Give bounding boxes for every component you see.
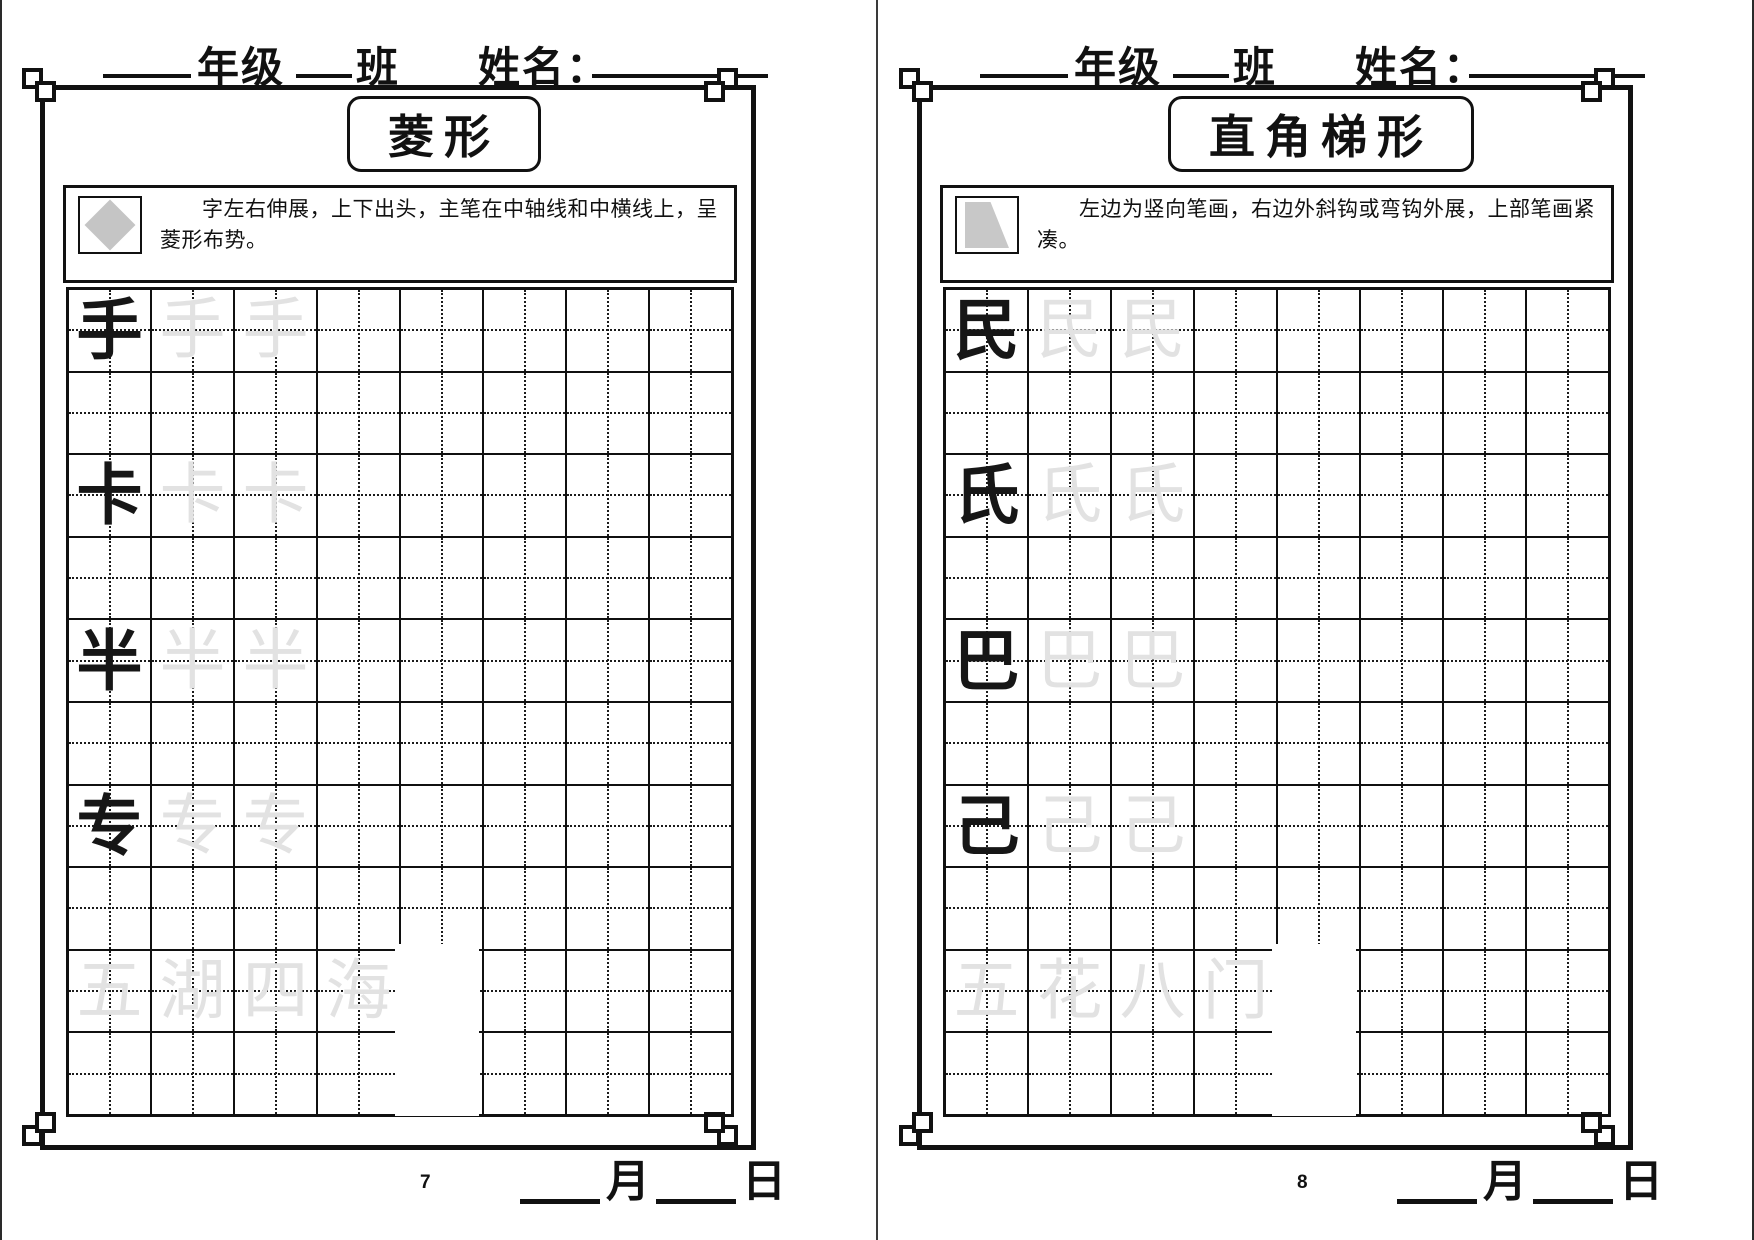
practice-cell[interactable] [1443, 1032, 1526, 1115]
practice-cell[interactable] [68, 702, 151, 785]
practice-cell[interactable] [1277, 785, 1360, 868]
shape-icon-box [78, 196, 142, 254]
practice-cell[interactable] [1111, 372, 1194, 455]
model-character: 半 [77, 628, 143, 694]
practice-cell[interactable] [483, 619, 566, 702]
practice-cell[interactable] [1111, 537, 1194, 620]
trace-character: 半 [243, 628, 309, 694]
practice-cell[interactable] [151, 702, 234, 785]
practice-cell[interactable] [483, 289, 566, 372]
practice-cell[interactable] [68, 537, 151, 620]
practice-cell[interactable] [945, 867, 1028, 950]
practice-cell[interactable] [649, 537, 732, 620]
trace-character: 专 [160, 793, 226, 859]
grid-cutout [1272, 944, 1356, 1116]
corner-knot-icon [899, 68, 935, 104]
trace-character: 八 [1120, 958, 1186, 1024]
practice-cell[interactable] [400, 537, 483, 620]
lesson-title-box: 直角梯形 [1168, 96, 1474, 172]
practice-cell[interactable] [649, 454, 732, 537]
practice-cell[interactable] [649, 702, 732, 785]
lesson-title-box: 菱形 [347, 96, 541, 172]
practice-cell[interactable]: 花 [1028, 950, 1111, 1033]
practice-cell[interactable] [400, 702, 483, 785]
practice-cell[interactable] [566, 372, 649, 455]
practice-cell[interactable] [1360, 785, 1443, 868]
lesson-title: 直角梯形 [1209, 101, 1433, 167]
day-blank-line[interactable] [1533, 1153, 1613, 1204]
grid-cutout [395, 944, 479, 1116]
practice-cell[interactable] [1360, 454, 1443, 537]
practice-cell[interactable] [566, 785, 649, 868]
practice-cell[interactable]: 己 [1111, 785, 1194, 868]
practice-cell[interactable] [1526, 785, 1609, 868]
trace-character: 氏 [1037, 462, 1103, 528]
practice-cell[interactable] [400, 619, 483, 702]
trace-character: 花 [1037, 958, 1103, 1024]
class-blank-line[interactable] [1173, 34, 1229, 78]
class-blank-line[interactable] [296, 34, 352, 78]
practice-cell[interactable] [566, 702, 649, 785]
practice-cell[interactable] [1028, 1032, 1111, 1115]
trace-character: 湖 [160, 958, 226, 1024]
practice-cell[interactable] [68, 372, 151, 455]
corner-knot-icon [22, 1110, 58, 1146]
practice-cell[interactable] [1443, 785, 1526, 868]
practice-cell[interactable] [1194, 619, 1277, 702]
trace-character: 氏 [1120, 462, 1186, 528]
model-character: 专 [77, 793, 143, 859]
practice-cell[interactable] [649, 950, 732, 1033]
practice-cell[interactable] [317, 785, 400, 868]
practice-cell[interactable] [1111, 867, 1194, 950]
practice-cell[interactable]: 半 [151, 619, 234, 702]
practice-cell[interactable] [1194, 785, 1277, 868]
practice-cell[interactable] [1526, 619, 1609, 702]
grade-blank-line[interactable] [980, 34, 1068, 78]
practice-cell[interactable] [1360, 372, 1443, 455]
practice-cell[interactable] [234, 372, 317, 455]
model-character: 巴 [954, 628, 1020, 694]
practice-cell[interactable] [151, 867, 234, 950]
practice-cell[interactable]: 巴 [1111, 619, 1194, 702]
practice-cell[interactable] [1277, 289, 1360, 372]
trace-character: 专 [243, 793, 309, 859]
trace-character: 巴 [1120, 628, 1186, 694]
practice-cell[interactable] [483, 702, 566, 785]
diamond-icon [85, 200, 136, 251]
instruction-box: 字左右伸展，上下出头，主笔在中轴线和中横线上，呈菱形布势。 [63, 185, 737, 283]
practice-cell[interactable] [483, 785, 566, 868]
practice-cell[interactable] [234, 867, 317, 950]
trace-character: 卡 [243, 462, 309, 528]
practice-cell[interactable] [1111, 702, 1194, 785]
practice-cell[interactable]: 民 [1111, 289, 1194, 372]
practice-cell[interactable] [566, 867, 649, 950]
practice-cell[interactable] [1277, 619, 1360, 702]
practice-cell[interactable]: 氏 [1028, 454, 1111, 537]
practice-cell[interactable] [1443, 537, 1526, 620]
date-footer: 月 日 [520, 1148, 792, 1204]
practice-cell[interactable] [1194, 454, 1277, 537]
practice-cell[interactable]: 卡 [234, 454, 317, 537]
practice-cell[interactable]: 海 [317, 950, 400, 1033]
practice-cell[interactable] [483, 867, 566, 950]
practice-cell[interactable] [945, 372, 1028, 455]
practice-cell[interactable] [945, 537, 1028, 620]
practice-cell[interactable] [1360, 537, 1443, 620]
practice-cell[interactable] [1277, 454, 1360, 537]
page-number: 8 [1297, 1172, 1308, 1194]
practice-cell[interactable] [649, 867, 732, 950]
practice-cell[interactable] [1443, 454, 1526, 537]
practice-cell[interactable]: 半 [68, 619, 151, 702]
practice-cell[interactable] [1360, 619, 1443, 702]
day-blank-line[interactable] [656, 1153, 736, 1204]
practice-cell[interactable] [1111, 1032, 1194, 1115]
practice-cell[interactable] [317, 867, 400, 950]
practice-cell[interactable]: 手 [234, 289, 317, 372]
practice-cell[interactable] [1194, 537, 1277, 620]
practice-cell[interactable]: 湖 [151, 950, 234, 1033]
practice-cell[interactable] [151, 372, 234, 455]
practice-cell[interactable] [234, 1032, 317, 1115]
practice-cell[interactable]: 卡 [151, 454, 234, 537]
trace-character: 巴 [1037, 628, 1103, 694]
practice-cell[interactable] [945, 702, 1028, 785]
practice-cell[interactable] [1028, 702, 1111, 785]
day-label: 日 [742, 1160, 786, 1204]
practice-cell[interactable] [483, 950, 566, 1033]
practice-cell[interactable] [1526, 372, 1609, 455]
practice-cell[interactable] [317, 537, 400, 620]
page-number: 7 [420, 1172, 431, 1194]
trace-character: 五 [77, 958, 143, 1024]
practice-cell[interactable]: 民 [1028, 289, 1111, 372]
practice-cell[interactable] [1443, 702, 1526, 785]
practice-cell[interactable] [1360, 867, 1443, 950]
trace-character: 门 [1203, 958, 1269, 1024]
practice-cell[interactable] [649, 619, 732, 702]
model-character: 民 [954, 297, 1020, 363]
practice-cell[interactable] [1277, 537, 1360, 620]
practice-cell[interactable] [317, 454, 400, 537]
trace-character: 手 [243, 297, 309, 363]
practice-cell[interactable] [1194, 1032, 1277, 1115]
practice-cell[interactable]: 氏 [945, 454, 1028, 537]
corner-knot-icon [1579, 68, 1615, 104]
trace-character: 四 [243, 958, 309, 1024]
practice-cell[interactable] [317, 1032, 400, 1115]
trapezoid-icon [965, 202, 1009, 248]
practice-cell[interactable] [1526, 867, 1609, 950]
date-footer: 月 日 [1397, 1148, 1669, 1204]
corner-knot-icon [702, 68, 738, 104]
model-character: 氏 [954, 462, 1020, 528]
practice-cell[interactable] [566, 289, 649, 372]
day-label: 日 [1619, 1160, 1663, 1204]
practice-cell[interactable]: 四 [234, 950, 317, 1033]
practice-cell[interactable] [1194, 867, 1277, 950]
practice-cell[interactable] [234, 702, 317, 785]
trace-character: 卡 [160, 462, 226, 528]
practice-cell[interactable]: 门 [1194, 950, 1277, 1033]
practice-cell[interactable] [400, 372, 483, 455]
practice-cell[interactable] [566, 950, 649, 1033]
practice-cell[interactable] [400, 867, 483, 950]
practice-cell[interactable]: 专 [68, 785, 151, 868]
practice-cell[interactable] [1194, 372, 1277, 455]
practice-cell[interactable]: 手 [68, 289, 151, 372]
practice-cell[interactable] [649, 1032, 732, 1115]
trace-character: 半 [160, 628, 226, 694]
practice-cell[interactable] [483, 1032, 566, 1115]
trace-character: 民 [1037, 297, 1103, 363]
month-label: 月 [1483, 1160, 1527, 1204]
practice-cell[interactable]: 巴 [945, 619, 1028, 702]
practice-cell[interactable]: 巴 [1028, 619, 1111, 702]
practice-cell[interactable]: 卡 [68, 454, 151, 537]
trace-character: 手 [160, 297, 226, 363]
practice-cell[interactable] [1526, 289, 1609, 372]
practice-cell[interactable] [1360, 289, 1443, 372]
practice-cell[interactable]: 专 [151, 785, 234, 868]
practice-cell[interactable] [945, 1032, 1028, 1115]
trace-character: 海 [326, 958, 392, 1024]
model-character: 卡 [77, 462, 143, 528]
practice-cell[interactable] [1443, 619, 1526, 702]
practice-cell[interactable] [151, 537, 234, 620]
practice-cell[interactable]: 八 [1111, 950, 1194, 1033]
practice-cell[interactable]: 五 [945, 950, 1028, 1033]
worksheet-page-right: 年级 班 姓名： 直角梯形 左边为竖向笔画，右边外斜钩或弯钩外展，上部笔画紧凑。… [877, 0, 1754, 1240]
practice-cell[interactable] [1443, 950, 1526, 1033]
name-blank-line[interactable] [592, 34, 768, 78]
practice-cell[interactable] [1277, 702, 1360, 785]
month-blank-line[interactable] [1397, 1153, 1477, 1204]
practice-cell[interactable] [1443, 372, 1526, 455]
practice-cell[interactable] [649, 785, 732, 868]
practice-cell[interactable] [1526, 702, 1609, 785]
name-blank-line[interactable] [1469, 34, 1645, 78]
month-blank-line[interactable] [520, 1153, 600, 1204]
practice-cell[interactable] [1028, 372, 1111, 455]
practice-cell[interactable] [1360, 702, 1443, 785]
practice-cell[interactable] [1028, 867, 1111, 950]
practice-cell[interactable] [1526, 454, 1609, 537]
practice-cell[interactable]: 氏 [1111, 454, 1194, 537]
practice-cell[interactable] [1443, 867, 1526, 950]
practice-cell[interactable]: 五 [68, 950, 151, 1033]
practice-cell[interactable] [1277, 372, 1360, 455]
practice-cell[interactable]: 专 [234, 785, 317, 868]
practice-cell[interactable] [1526, 537, 1609, 620]
practice-cell[interactable] [1194, 289, 1277, 372]
practice-cell[interactable] [400, 454, 483, 537]
trace-character: 己 [1120, 793, 1186, 859]
trace-character: 己 [1037, 793, 1103, 859]
practice-cell[interactable]: 民 [945, 289, 1028, 372]
practice-cell[interactable] [566, 619, 649, 702]
practice-cell[interactable] [566, 454, 649, 537]
shape-icon-box [955, 196, 1019, 254]
instruction-box: 左边为竖向笔画，右边外斜钩或弯钩外展，上部笔画紧凑。 [940, 185, 1614, 283]
lesson-title: 菱形 [388, 101, 500, 167]
practice-cell[interactable] [566, 537, 649, 620]
trace-character: 民 [1120, 297, 1186, 363]
practice-cell[interactable] [649, 372, 732, 455]
practice-cell[interactable]: 己 [1028, 785, 1111, 868]
practice-cell[interactable]: 手 [151, 289, 234, 372]
corner-knot-icon [899, 1110, 935, 1146]
practice-cell[interactable] [1277, 867, 1360, 950]
practice-cell[interactable] [566, 1032, 649, 1115]
trace-character: 五 [954, 958, 1020, 1024]
month-label: 月 [606, 1160, 650, 1204]
worksheet-page-left: 年级 班 姓名： 菱形 字左右伸展，上下出头，主笔在中轴线和中横线上，呈菱形布势… [0, 0, 877, 1240]
practice-cell[interactable] [649, 289, 732, 372]
model-character: 己 [954, 793, 1020, 859]
practice-cell[interactable] [1360, 1032, 1443, 1115]
grade-blank-line[interactable] [103, 34, 191, 78]
practice-cell[interactable] [400, 785, 483, 868]
practice-cell[interactable] [68, 867, 151, 950]
practice-cell[interactable] [1194, 702, 1277, 785]
practice-cell[interactable]: 半 [234, 619, 317, 702]
practice-cell[interactable] [483, 537, 566, 620]
practice-cell[interactable] [317, 289, 400, 372]
practice-cell[interactable] [317, 702, 400, 785]
practice-cell[interactable] [317, 372, 400, 455]
model-character: 手 [77, 297, 143, 363]
practice-cell[interactable] [483, 454, 566, 537]
practice-cell[interactable] [1526, 950, 1609, 1033]
practice-cell[interactable] [1360, 950, 1443, 1033]
instruction-text: 字左右伸展，上下出头，主笔在中轴线和中横线上，呈菱形布势。 [160, 194, 726, 256]
practice-cell[interactable] [151, 1032, 234, 1115]
corner-knot-icon [22, 68, 58, 104]
practice-cell[interactable] [1028, 537, 1111, 620]
practice-cell[interactable] [317, 619, 400, 702]
practice-cell[interactable] [1443, 289, 1526, 372]
practice-cell[interactable] [483, 372, 566, 455]
practice-cell[interactable] [1526, 1032, 1609, 1115]
practice-cell[interactable] [400, 289, 483, 372]
practice-cell[interactable] [68, 1032, 151, 1115]
practice-cell[interactable] [234, 537, 317, 620]
instruction-text: 左边为竖向笔画，右边外斜钩或弯钩外展，上部笔画紧凑。 [1037, 194, 1603, 256]
practice-cell[interactable]: 己 [945, 785, 1028, 868]
